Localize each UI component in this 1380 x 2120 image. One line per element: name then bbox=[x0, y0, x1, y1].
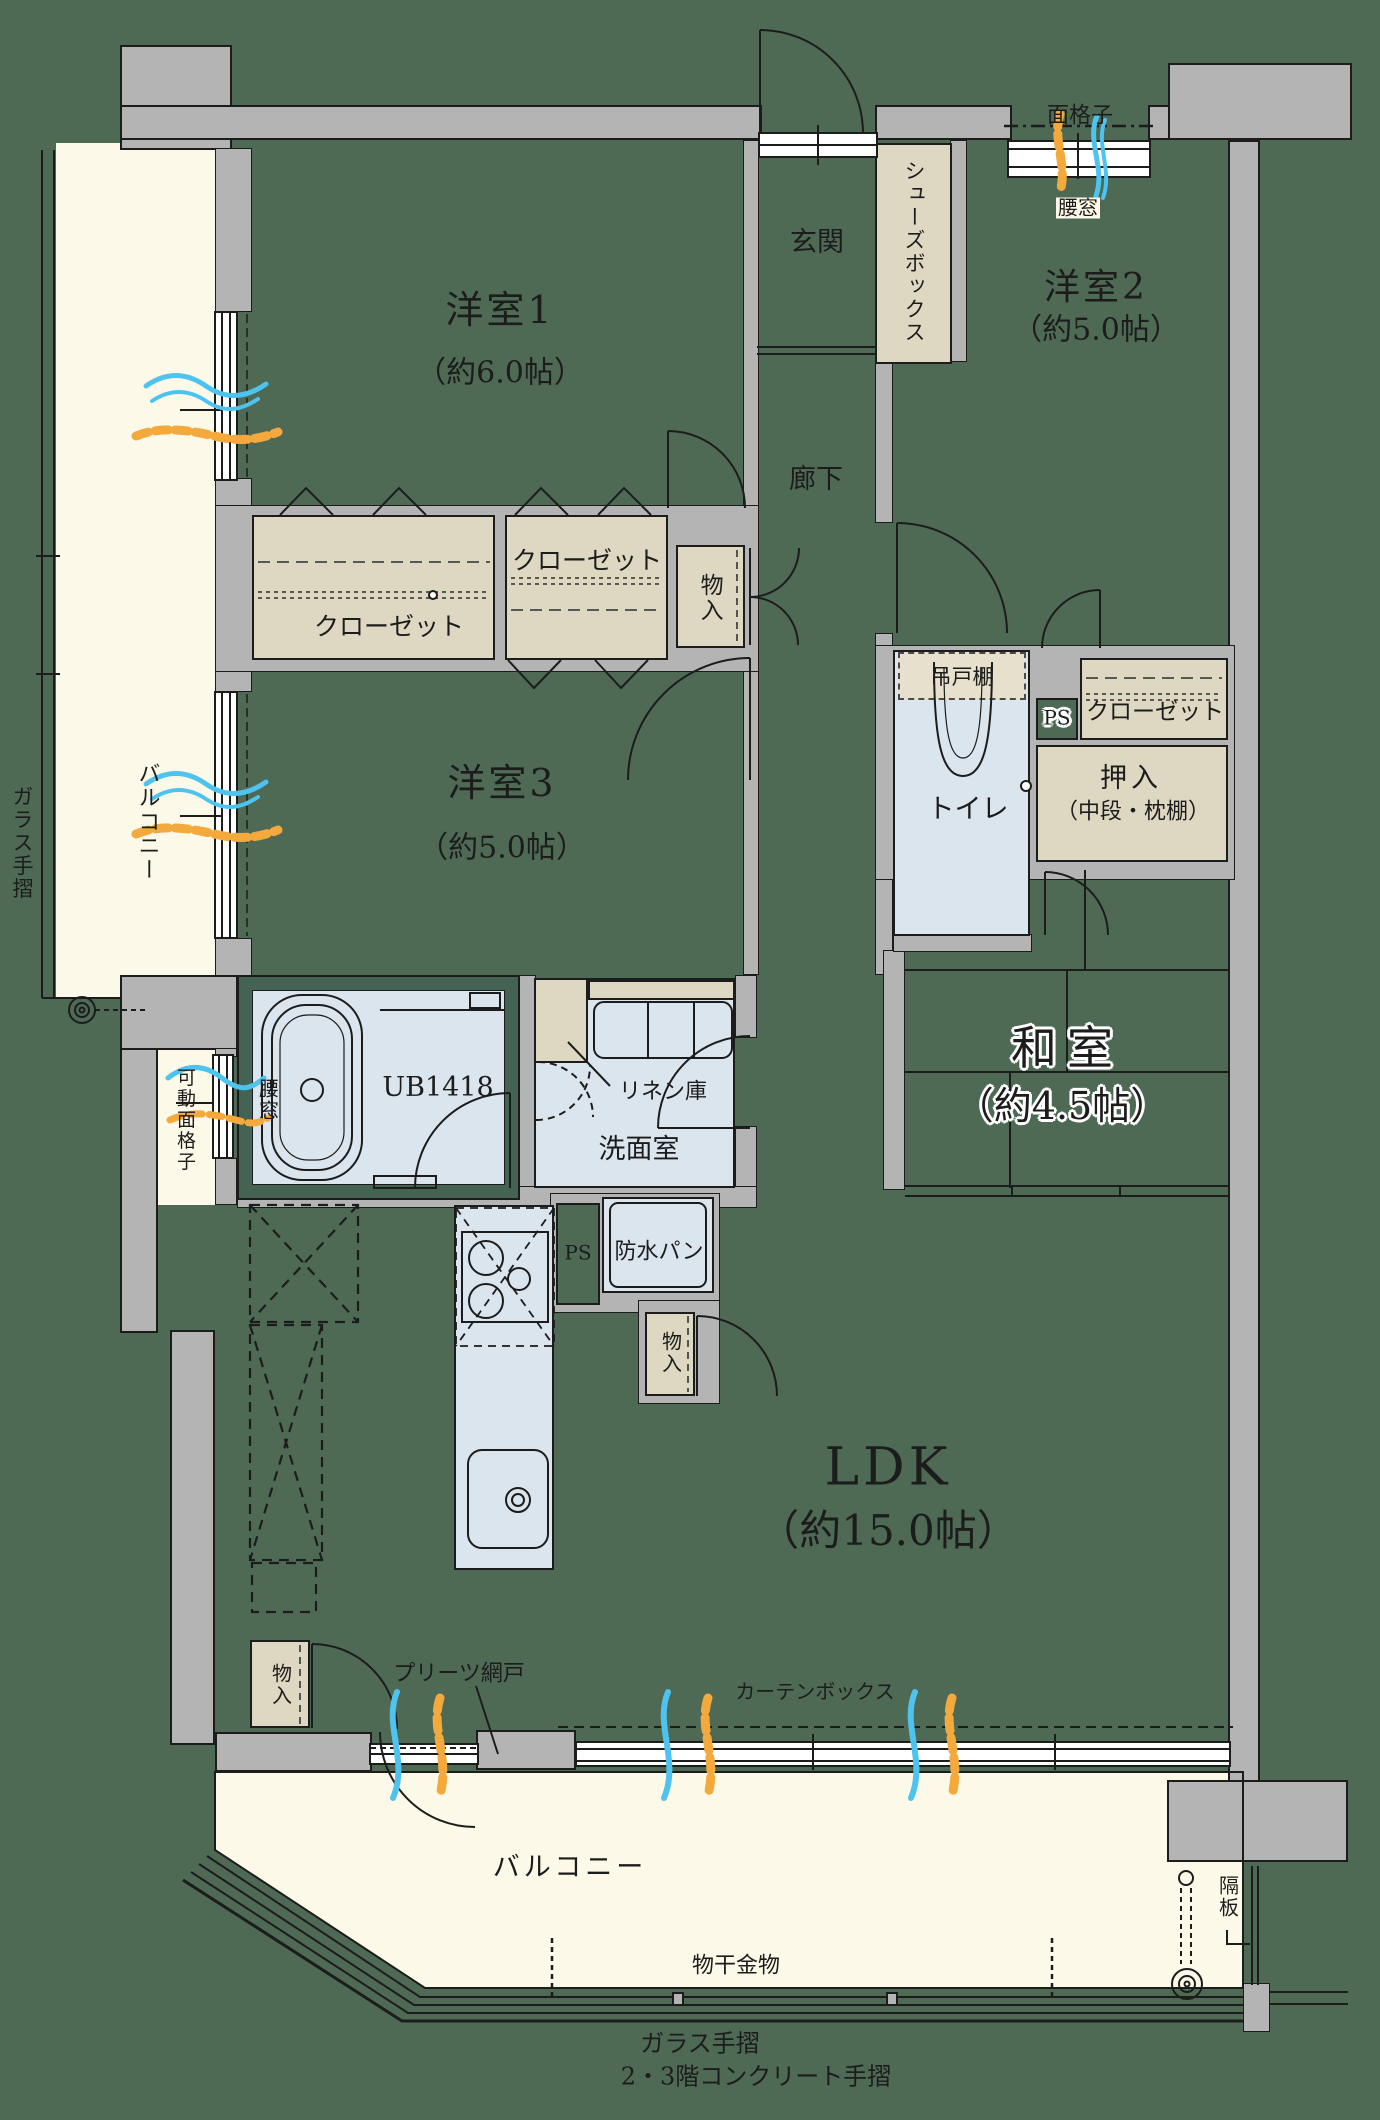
label-toilet: トイレ bbox=[928, 796, 1009, 824]
label-genkan: 玄関 bbox=[790, 229, 844, 257]
wall bbox=[1228, 140, 1260, 1782]
label-linen: リネン庫 bbox=[619, 1080, 707, 1103]
wall bbox=[120, 975, 238, 1050]
label-yoshitsu2: 洋室2 bbox=[1044, 269, 1148, 307]
floor-plan: 洋室1 （約6.0帖） 洋室2 （約5.0帖） 洋室3 （約5.0帖） 和室 （… bbox=[0, 0, 1380, 2120]
label-closet-b: クローゼット bbox=[512, 548, 662, 574]
wall bbox=[950, 140, 967, 362]
wall bbox=[170, 1330, 215, 1745]
linen-storage bbox=[534, 978, 588, 1063]
label-ub: UB1418 bbox=[382, 1074, 493, 1102]
wall bbox=[1167, 1780, 1348, 1862]
label-koshimado-top: 腰窓 bbox=[1056, 198, 1100, 219]
label-yoshitsu3: 洋室3 bbox=[447, 764, 556, 804]
window-yoshitsu2-top bbox=[1004, 126, 1154, 179]
wall bbox=[875, 362, 893, 523]
rail-post bbox=[887, 1993, 897, 2005]
wall bbox=[735, 1126, 757, 1190]
door-yoshitsu2 bbox=[897, 523, 1007, 633]
label-ldk: LDK bbox=[824, 1441, 951, 1496]
balcony-partition-post bbox=[1243, 1983, 1270, 2032]
wall bbox=[215, 1158, 237, 1205]
balcony-door-opening bbox=[370, 1744, 478, 1764]
label-menkoushi: 面格子 bbox=[1047, 104, 1113, 127]
door-washitsu bbox=[1045, 872, 1108, 935]
door-storage-bottom bbox=[312, 1644, 397, 1729]
wall bbox=[893, 934, 1032, 952]
vanity-backsplash bbox=[588, 980, 735, 1000]
wall bbox=[215, 938, 252, 978]
label-closet-c: クローゼット bbox=[1086, 700, 1224, 724]
wall bbox=[735, 975, 757, 1038]
wall bbox=[120, 1048, 158, 1333]
label-oshiire: 押入 bbox=[1100, 765, 1162, 793]
door-yoshitsu1 bbox=[668, 431, 745, 508]
label-yoshitsu3-size: （約5.0帖） bbox=[418, 832, 586, 864]
label-glass-left: ガラス手摺 bbox=[11, 786, 33, 901]
label-yoshitsu1-size: （約6.0帖） bbox=[416, 357, 584, 389]
airflow-blue-icon bbox=[1102, 120, 1106, 198]
kitchen-counter bbox=[454, 1205, 554, 1570]
rail-post bbox=[673, 1993, 683, 2005]
label-pleats-amido: プリーツ網戸 bbox=[393, 1662, 525, 1685]
label-balcony-main: バルコニー bbox=[493, 1854, 647, 1882]
label-glass-bottom: ガラス手摺 bbox=[640, 2031, 760, 2056]
door-yoshitsu3 bbox=[628, 658, 750, 780]
label-tsuridana: 吊戸棚 bbox=[931, 666, 994, 688]
label-washroom: 洗面室 bbox=[599, 1136, 680, 1164]
label-yoshitsu2-size: （約5.0帖） bbox=[1012, 314, 1180, 346]
label-washitsu: 和室 bbox=[1011, 1024, 1123, 1072]
label-storage-kitchen: 物入 bbox=[660, 1331, 681, 1375]
label-ps-toilet: PS bbox=[1043, 708, 1070, 729]
furniture-dashed-boxes bbox=[250, 1205, 358, 1612]
label-washitsu-size: （約4.5帖） bbox=[956, 1087, 1168, 1127]
label-koshimado-bath: 腰窓 bbox=[257, 1078, 278, 1122]
label-monohoshi: 物干金物 bbox=[692, 1954, 780, 1977]
wall bbox=[215, 148, 252, 312]
label-ps-kitchen: PS bbox=[564, 1243, 591, 1264]
wall bbox=[875, 105, 1012, 140]
door-closet-yoshitsu2 bbox=[1042, 590, 1100, 648]
wall bbox=[215, 1048, 237, 1057]
wall bbox=[120, 105, 762, 140]
label-curtain-box: カーテンボックス bbox=[735, 1682, 894, 1703]
label-kadou-menkoushi: 可動面格子 bbox=[174, 1068, 194, 1173]
closet-b bbox=[505, 515, 668, 660]
label-balcony-left: バルコニー bbox=[135, 762, 158, 882]
wall bbox=[215, 1732, 372, 1772]
label-concrete-rail: 2・3階コンクリート手摺 bbox=[621, 2064, 892, 2089]
label-kakuita: 隔板 bbox=[1217, 1875, 1238, 1919]
label-yoshitsu1: 洋室1 bbox=[445, 291, 554, 331]
label-closet-a: クローゼット bbox=[314, 614, 464, 640]
label-rouka: 廊下 bbox=[789, 466, 843, 494]
window-ldk-bottom bbox=[558, 1727, 1233, 1770]
wall bbox=[476, 1730, 576, 1770]
label-shoes-box: シューズボックス bbox=[903, 160, 925, 344]
wall bbox=[883, 950, 905, 1190]
entrance-sill bbox=[759, 125, 877, 165]
label-storage-row: 物入 bbox=[697, 573, 721, 623]
label-storage-bottom: 物入 bbox=[270, 1663, 291, 1707]
label-laundry-pan: 防水パン bbox=[614, 1240, 703, 1263]
entrance-door bbox=[760, 30, 863, 133]
label-oshiire-note: （中段・枕棚） bbox=[1056, 800, 1210, 823]
label-ldk-size: （約15.0帖） bbox=[757, 1509, 1019, 1553]
wall bbox=[1168, 63, 1352, 140]
